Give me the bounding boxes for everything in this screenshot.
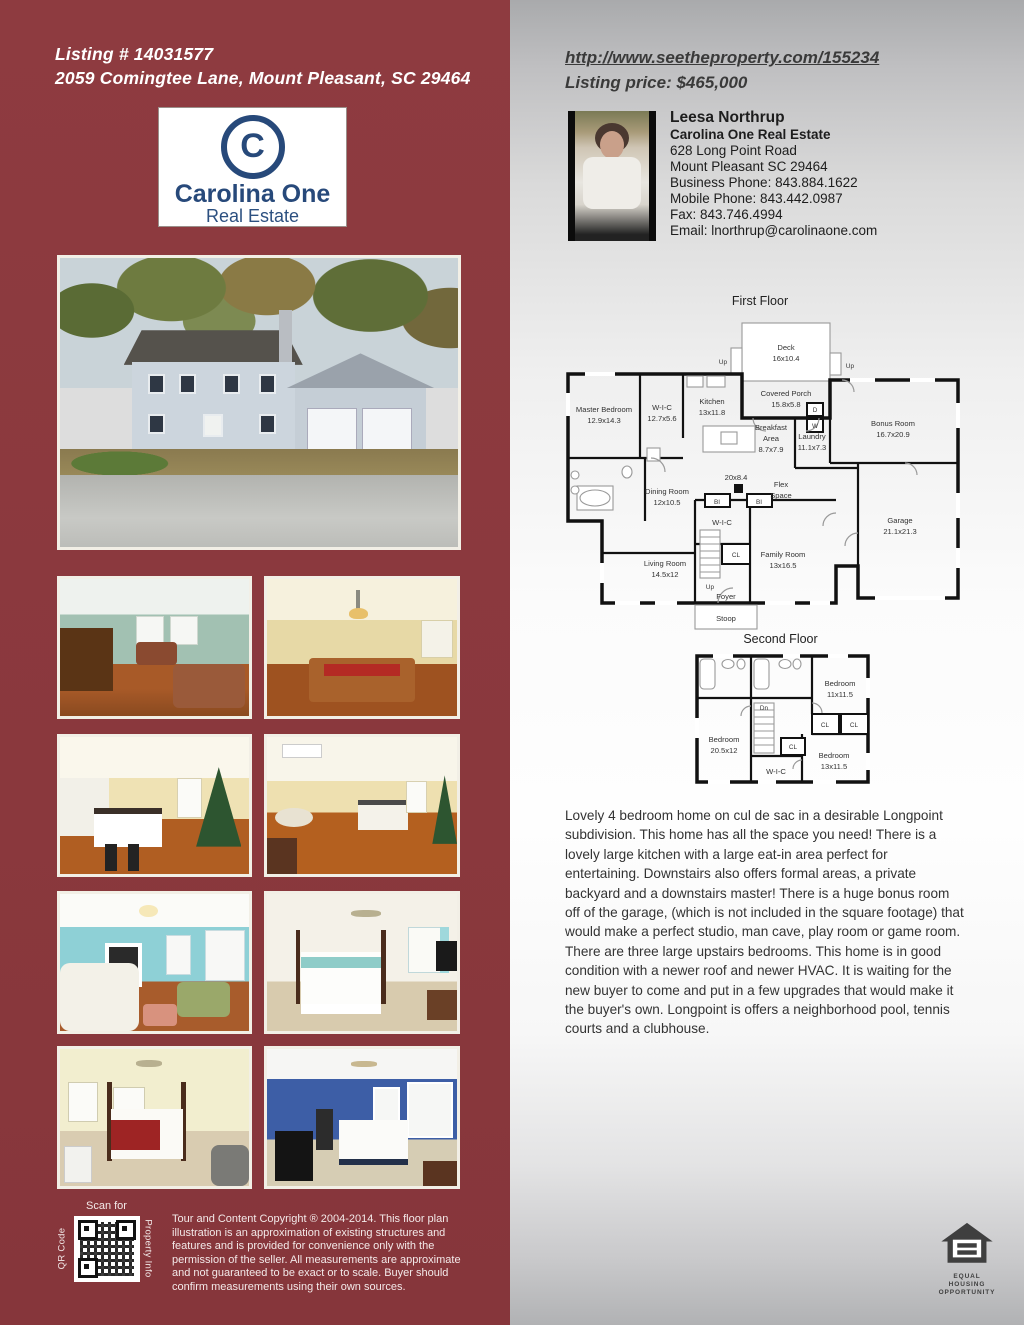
deck-up-right: Up [846, 363, 855, 370]
agent-address1: 628 Long Point Road [670, 143, 877, 159]
agent-email: Email: lnorthrup@carolinaone.com [670, 223, 877, 239]
first-floor-title: First Floor [555, 294, 965, 308]
second-floor-title: Second Floor [688, 632, 873, 646]
photo-master-bedroom [264, 891, 460, 1034]
family-room-label: Family Room [761, 550, 806, 559]
agent-name: Leesa Northrup [670, 109, 877, 127]
garage-label: Garage [887, 516, 912, 525]
photo-sitting-room-aqua [57, 891, 252, 1034]
equal-housing-logo: EQUAL HOUSING OPPORTUNITY [938, 1222, 996, 1297]
wic2-label: W-I-C [712, 518, 732, 527]
listing-price: Listing price: $465,000 [565, 73, 747, 93]
copyright-text: Tour and Content Copyright ® 2004-2014. … [172, 1213, 468, 1295]
logo-subtitle: Real Estate [159, 207, 346, 226]
svg-text:13x11.8: 13x11.8 [699, 408, 725, 417]
eho-text-line2: OPPORTUNITY [938, 1289, 996, 1297]
photo-dining-room [264, 576, 460, 719]
svg-text:8.7x7.9: 8.7x7.9 [759, 445, 784, 454]
logo-c-icon: C [221, 115, 285, 179]
svg-text:16.7x20.9: 16.7x20.9 [876, 430, 909, 439]
svg-text:12x10.5: 12x10.5 [653, 498, 680, 507]
agent-mobile-phone: Mobile Phone: 843.442.0987 [670, 191, 877, 207]
svg-text:11x11.5: 11x11.5 [827, 690, 853, 699]
master-bedroom-label: Master Bedroom [576, 405, 632, 414]
dining-room-label: Dining Room [645, 487, 689, 496]
svg-text:21.1x21.3: 21.1x21.3 [883, 527, 916, 536]
bedroom2-label: Bedroom [709, 735, 740, 744]
svg-text:CL: CL [732, 552, 741, 559]
deck-up-left: Up [719, 359, 728, 366]
qr-code [74, 1216, 140, 1282]
svg-text:D: D [813, 407, 818, 414]
svg-text:BI: BI [756, 499, 762, 506]
eho-text-line1: EQUAL HOUSING [938, 1273, 996, 1289]
qr-left-label: QR Code [57, 1219, 68, 1279]
equal-housing-icon [940, 1222, 994, 1268]
agent-company: Carolina One Real Estate [670, 127, 877, 143]
hall-dimension: 20x8.4 [725, 473, 748, 482]
svg-text:12.7x5.6: 12.7x5.6 [647, 414, 676, 423]
svg-text:13x11.5: 13x11.5 [821, 762, 847, 771]
front-exterior-image [60, 258, 458, 547]
svg-text:15.8x5.8: 15.8x5.8 [771, 400, 800, 409]
svg-text:Space: Space [770, 491, 792, 500]
photo-living-room-piano [57, 576, 252, 719]
property-url-link[interactable]: http://www.seetheproperty.com/155234 [565, 48, 879, 68]
wic-second-label: W-I-C [766, 767, 786, 776]
svg-text:11.1x7.3: 11.1x7.3 [798, 443, 827, 452]
agent-fax: Fax: 843.746.4994 [670, 207, 877, 223]
wic-label: W-I-C [652, 403, 672, 412]
covered-porch-label: Covered Porch [761, 389, 812, 398]
left-panel: Listing # 14031577 2059 Comingtee Lane, … [0, 0, 510, 1325]
flex-space-label: Flex [774, 480, 789, 489]
stoop-label: Stoop [716, 614, 736, 623]
listing-address: 2059 Comingtee Lane, Mount Pleasant, SC … [55, 68, 471, 89]
bonus-room-label: Bonus Room [871, 419, 915, 428]
svg-text:12.9x14.3: 12.9x14.3 [587, 416, 620, 425]
photo-bedroom-four-poster [57, 1046, 252, 1189]
agent-business-phone: Business Phone: 843.884.1622 [670, 175, 877, 191]
stairs-down-label: Dn [760, 705, 769, 712]
foyer-label: Foyer [716, 592, 736, 601]
agent-photo [568, 111, 656, 241]
svg-text:Area: Area [763, 434, 780, 443]
carolina-one-logo: C Carolina One Real Estate [158, 107, 347, 227]
first-floor-plan: Deck 16x10.4 Up Up Covered Porch 15.8x5.… [555, 308, 965, 638]
deck-label: Deck [777, 343, 795, 352]
svg-text:CL: CL [789, 744, 798, 751]
listing-number: Listing # 14031577 [55, 44, 213, 65]
kitchen-label: Kitchen [699, 397, 724, 406]
living-room-label: Living Room [644, 559, 686, 568]
qr-scan-for-label: Scan for [86, 1200, 127, 1212]
svg-text:BI: BI [714, 499, 720, 506]
bedroom1-label: Bedroom [825, 679, 856, 688]
svg-text:14.5x12: 14.5x12 [651, 570, 678, 579]
svg-text:13x16.5: 13x16.5 [769, 561, 796, 570]
logo-name: Carolina One [159, 181, 346, 207]
flyer-page: Listing # 14031577 2059 Comingtee Lane, … [0, 0, 1024, 1325]
bedroom3-label: Bedroom [819, 751, 850, 760]
breakfast-label: Breakfast [755, 423, 788, 432]
property-description: Lovely 4 bedroom home on cul de sac in a… [565, 806, 965, 1039]
photo-bedroom-blue [264, 1046, 460, 1189]
stairs-up-label: Up [706, 584, 715, 591]
qr-right-label: Property Info [143, 1209, 154, 1289]
deck-outline [742, 323, 830, 381]
agent-address2: Mount Pleasant SC 29464 [670, 159, 877, 175]
svg-text:W: W [812, 423, 819, 430]
second-floor-plan: Bedroom 11x11.5 Bedroom 20.5x12 Bedroom … [688, 648, 873, 793]
photo-kitchen-island [57, 734, 252, 877]
photo-kitchen-open [264, 734, 460, 877]
svg-text:20.5x12: 20.5x12 [710, 746, 737, 755]
laundry-label: Laundry [798, 432, 826, 441]
svg-text:CL: CL [850, 722, 859, 729]
photo-front-exterior [57, 255, 461, 550]
svg-text:CL: CL [821, 722, 830, 729]
svg-text:16x10.4: 16x10.4 [772, 354, 799, 363]
